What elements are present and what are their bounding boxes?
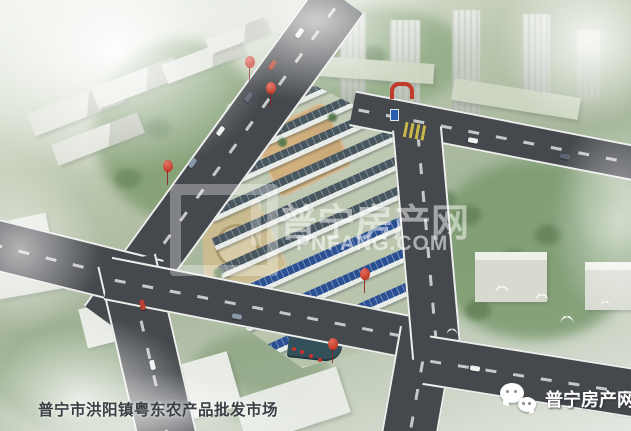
balloon-icon <box>266 82 276 94</box>
bird-icon <box>535 294 549 301</box>
balloon-icon <box>360 268 370 280</box>
corner-watermark-label: 普宁房产网 <box>545 386 631 412</box>
balloon-icon <box>163 160 173 172</box>
watermark-site: PNFANG.COM <box>296 232 448 256</box>
balloon-icon <box>245 56 255 68</box>
corner-watermark: 普宁房产网 <box>500 383 631 414</box>
wechat-icon <box>500 383 538 414</box>
balloon-icon <box>328 338 338 350</box>
project-caption: 普宁市洪阳镇粤东农产品批发市场 <box>38 398 278 420</box>
tower <box>576 30 600 102</box>
wechat-bubble-small <box>518 397 536 412</box>
red-arch-icon <box>390 82 414 99</box>
photo-frame-logo-icon <box>170 184 278 276</box>
bird-icon <box>446 329 457 335</box>
bird-icon <box>600 301 610 306</box>
lantern-icons <box>300 350 304 354</box>
road-sign <box>390 109 399 121</box>
bird-icon <box>560 316 574 323</box>
bird-icon <box>495 286 509 293</box>
aerial-rendering-image: 普宁房产网 PNFANG.COM 普宁市洪阳镇粤东农产品批发市场 普宁房产网 <box>0 0 631 431</box>
